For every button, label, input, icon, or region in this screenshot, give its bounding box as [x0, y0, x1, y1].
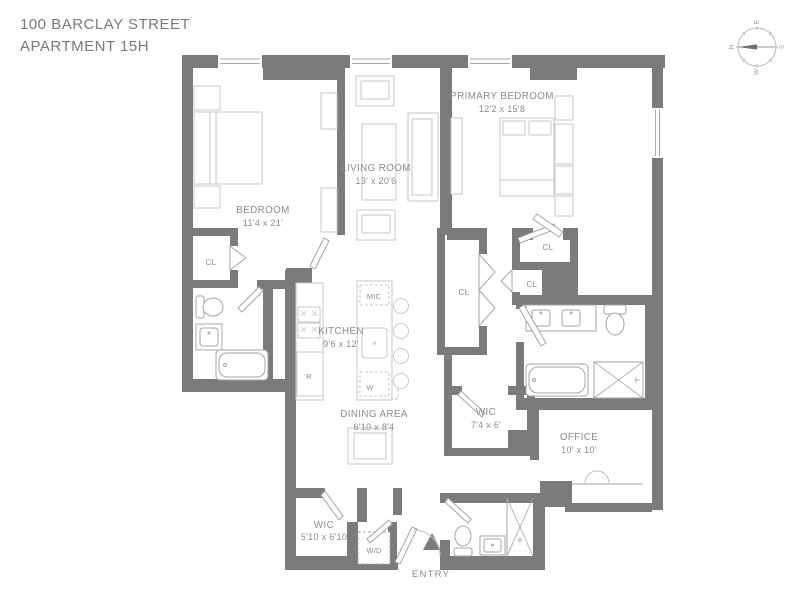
room-dims-office: 10' x 10': [561, 445, 597, 455]
door-icon: [395, 527, 417, 564]
toilet-icon: [604, 305, 626, 335]
compass-label-north: N: [729, 44, 736, 49]
room-dims-kitchen: 9'6 x 12': [323, 339, 359, 349]
room-dims-wic-primary: 7'4 x 6': [471, 420, 501, 430]
plan-title: 100 BARCLAY STREET APARTMENT 15H: [20, 14, 190, 58]
floorplan-drawing: BEDROOM 11'4 x 21' LIVING ROOM 13' x 20'…: [0, 0, 800, 608]
shower-icon: [594, 362, 643, 398]
bathtub-icon: [526, 364, 588, 396]
bed-icon: [500, 118, 554, 196]
microwave-label: MIC: [367, 292, 382, 301]
sink-icon: [480, 536, 505, 555]
shower-icon: [507, 498, 533, 556]
stool-icon: [394, 374, 409, 389]
armchair-icon: [357, 210, 395, 240]
nightstand-icon: [194, 186, 220, 208]
bifold-door-icon: [479, 290, 495, 326]
room-label-office: OFFICE: [560, 432, 598, 443]
closet-label: CL: [458, 288, 469, 297]
room-label-entry: ENTRY: [412, 569, 450, 580]
compass-icon: N E S W: [729, 19, 786, 75]
toilet-icon: [454, 526, 472, 556]
dresser-icon: [321, 188, 337, 232]
door-icon: [238, 287, 263, 312]
sofa-icon: [408, 113, 438, 201]
room-dims-wic-entry: 5'10 x 6'10: [301, 532, 347, 542]
bifold-door-icon: [230, 246, 246, 270]
sink-icon: [196, 324, 222, 350]
stool-icon: [394, 299, 409, 314]
coffee-table-icon: [362, 124, 396, 200]
stove-icon: [298, 307, 320, 338]
room-dims-bedroom: 11'4 x 21': [243, 218, 283, 228]
room-label-primary-bedroom: PRIMARY BEDROOM: [450, 91, 554, 102]
floorplan-page: 100 BARCLAY STREET APARTMENT 15H: [0, 0, 800, 608]
closet-label: CL: [542, 243, 553, 252]
bifold-door-icon: [479, 254, 495, 290]
bifold-door-icon: [501, 270, 512, 292]
toilet-icon: [196, 296, 223, 318]
wardrobe-icon: [451, 118, 462, 194]
plan-title-line1: 100 BARCLAY STREET: [20, 14, 190, 36]
closet-label: CL: [526, 280, 537, 289]
compass-needle-icon: [738, 44, 757, 49]
dining-table-icon: [348, 428, 392, 464]
room-dims-dining-area: 6'10 x 8'4: [354, 422, 395, 432]
wine-cooler-icon: [360, 372, 389, 396]
bathtub-icon: [216, 350, 268, 380]
door-arc-icon: [585, 471, 609, 483]
room-dims-primary-bedroom: 12'2 x 15'8: [479, 104, 525, 114]
nightstand-icon: [194, 86, 220, 110]
refrigerator-label: R: [306, 372, 312, 381]
door-icon: [321, 491, 343, 520]
room-dims-living-room: 13' x 20'6: [356, 176, 397, 186]
shelving-icon: [555, 96, 573, 216]
plan-title-line2: APARTMENT 15H: [20, 36, 190, 58]
door-icon: [310, 238, 329, 269]
stool-icon: [394, 349, 409, 364]
room-label-kitchen: KITCHEN: [318, 326, 364, 337]
stool-icon: [394, 324, 409, 339]
room-label-wic-entry: WIC: [314, 520, 334, 531]
room-label-wic-primary: WIC: [476, 407, 496, 418]
washer-dryer-label: W/D: [367, 546, 382, 555]
sink-icon: [362, 328, 387, 358]
dresser-icon: [321, 93, 337, 129]
compass-label-south: S: [779, 44, 786, 49]
room-label-bedroom: BEDROOM: [236, 205, 289, 216]
bed-icon: [194, 112, 262, 184]
room-label-dining-area: DINING AREA: [340, 409, 408, 420]
armchair-icon: [356, 76, 394, 106]
closet-label: CL: [205, 258, 216, 267]
wine-cooler-label: W: [366, 383, 373, 392]
room-label-living-room: LIVING ROOM: [341, 163, 411, 174]
compass-label-west: W: [754, 68, 761, 75]
compass-label-east: E: [754, 19, 761, 24]
